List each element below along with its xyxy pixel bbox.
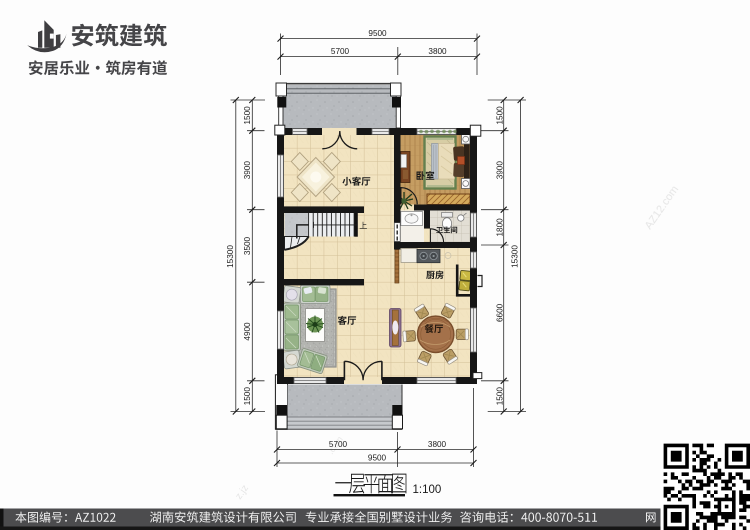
svg-text:3800: 3800 [428, 440, 447, 449]
svg-text:1500: 1500 [495, 387, 504, 406]
svg-text:6600: 6600 [495, 303, 504, 322]
svg-text:5700: 5700 [329, 440, 348, 449]
svg-text:9500: 9500 [368, 453, 387, 462]
svg-text:15300: 15300 [511, 245, 520, 268]
svg-text:1500: 1500 [243, 106, 252, 125]
svg-text:1800: 1800 [495, 218, 504, 237]
svg-text:3900: 3900 [243, 161, 252, 180]
svg-text:3500: 3500 [243, 236, 252, 255]
svg-text:1:100: 1:100 [413, 484, 442, 496]
svg-text:15300: 15300 [226, 245, 235, 268]
svg-text:1500: 1500 [495, 106, 504, 125]
svg-text:5700: 5700 [331, 47, 350, 56]
svg-text:3800: 3800 [428, 47, 447, 56]
svg-text:1500: 1500 [243, 387, 252, 406]
svg-text:9500: 9500 [368, 29, 387, 38]
svg-text:3900: 3900 [495, 161, 504, 180]
svg-text:4900: 4900 [243, 322, 252, 341]
